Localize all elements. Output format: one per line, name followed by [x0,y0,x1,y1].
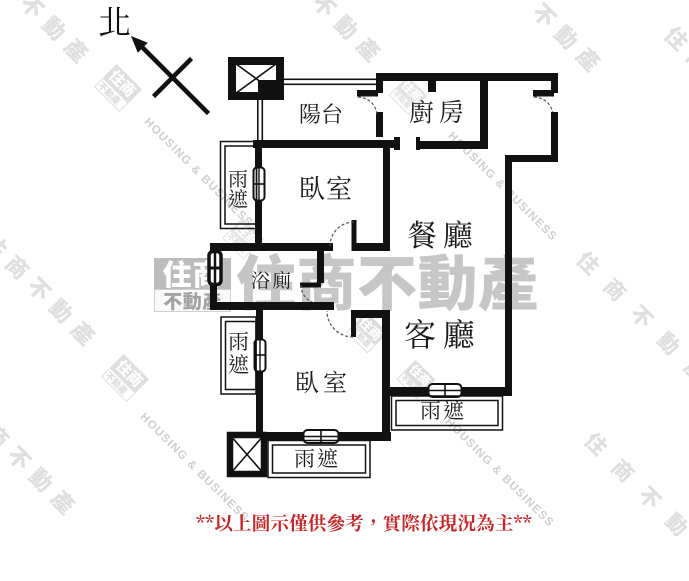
svg-text:北: 北 [98,0,131,44]
